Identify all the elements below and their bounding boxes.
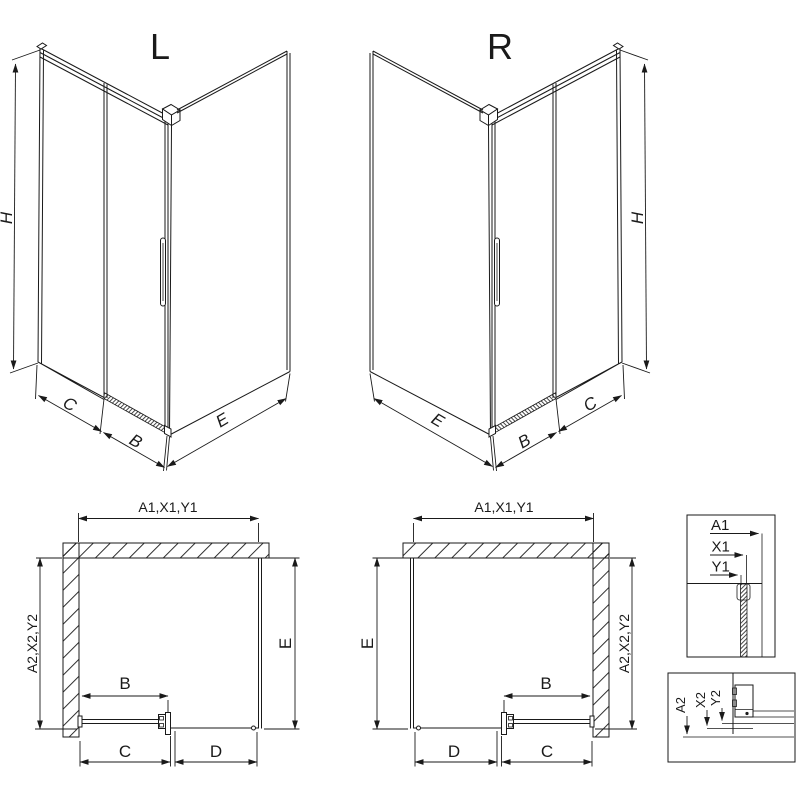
plan-left-wall-top-hatched bbox=[63, 543, 269, 558]
detail-bottom-label-y2: Y2 bbox=[708, 690, 723, 706]
front-frame-lines bbox=[38, 48, 168, 400]
detail-top-label-y1: Y1 bbox=[712, 559, 730, 576]
door-bottom-rail-hatched bbox=[104, 393, 167, 434]
plan-right-dim-label-d: D bbox=[448, 742, 460, 761]
iso-enclosure-lineart-right-mirrored bbox=[370, 43, 650, 471]
detail-bottom-label-a2: A2 bbox=[673, 697, 688, 713]
iso-right-dim-label-b: B bbox=[515, 430, 534, 452]
stile-top-cap bbox=[37, 43, 47, 49]
iso-dimension-lines bbox=[10, 50, 290, 471]
plan-right-dim-label-top: A1,X1,Y1 bbox=[474, 499, 533, 515]
plan-left-wall-left-hatched bbox=[63, 543, 79, 737]
side-panel-lines bbox=[170, 51, 291, 435]
plan-right-dim-label-right: A2,X2,Y2 bbox=[616, 614, 632, 673]
door-end-profile bbox=[166, 713, 171, 735]
detail-bottom-track-lines bbox=[683, 711, 794, 737]
iso-right-dim-label-e: E bbox=[428, 409, 448, 431]
iso-left-dim-label-c: C bbox=[60, 393, 81, 416]
detail-top-label-a1: A1 bbox=[711, 517, 729, 534]
iso-left-dim-label-e: E bbox=[213, 409, 233, 431]
plan-right-dim-label-c: C bbox=[541, 742, 553, 761]
detail-top-label-x1: X1 bbox=[712, 539, 730, 556]
plan-left-dim-label-right: E bbox=[276, 638, 295, 649]
iso-left-dim-label-b: B bbox=[126, 430, 145, 452]
dim-extension-lines bbox=[10, 50, 290, 471]
plan-left-dim-label-d: D bbox=[210, 742, 222, 761]
iso-view-left-labels: L H C B E bbox=[0, 26, 232, 452]
detail-bottom-fixing-dot bbox=[745, 712, 748, 715]
iso-right-dim-label-c: C bbox=[580, 393, 601, 416]
track-end-roller bbox=[252, 726, 256, 730]
plan-right-dim-label-left: E bbox=[358, 638, 377, 649]
detail-bottom-label-x2: X2 bbox=[693, 692, 708, 708]
door-wall-cap bbox=[78, 716, 82, 727]
iso-right-dim-label-h: H bbox=[628, 211, 647, 224]
detail-view-top: A1 X1 Y1 bbox=[687, 515, 775, 657]
technical-drawing-canvas: L H C B E R H C B E A bbox=[0, 0, 800, 800]
sliding-door-glass bbox=[81, 720, 159, 724]
variant-label-right: R bbox=[487, 26, 513, 67]
detail-view-bottom: A2 X2 Y2 bbox=[668, 673, 795, 762]
plan-right-wall-top-hatched bbox=[403, 543, 609, 558]
dim-line-side bbox=[168, 399, 287, 467]
plan-left-dim-label-top: A1,X1,Y1 bbox=[138, 499, 197, 515]
detail-bottom-rail-profile bbox=[735, 685, 753, 717]
plan-left-dim-label-left: A2,X2,Y2 bbox=[24, 614, 40, 673]
detail-top-glass-strip-hatched bbox=[741, 584, 748, 658]
variant-label-left: L bbox=[150, 26, 170, 67]
plan-left-dim-label-c: C bbox=[119, 742, 131, 761]
plan-left-dim-label-door: B bbox=[119, 674, 130, 693]
plan-right-wall-right-hatched bbox=[593, 543, 609, 737]
iso-left-dim-label-h: H bbox=[0, 211, 16, 224]
iso-enclosure-lineart bbox=[10, 43, 290, 471]
side-glass-panel-edge bbox=[259, 558, 262, 729]
plan-right-dim-label-door: B bbox=[540, 674, 551, 693]
iso-view-right-labels: R H C B E bbox=[428, 26, 647, 452]
technical-drawing-page: L H C B E R H C B E A bbox=[0, 0, 800, 800]
